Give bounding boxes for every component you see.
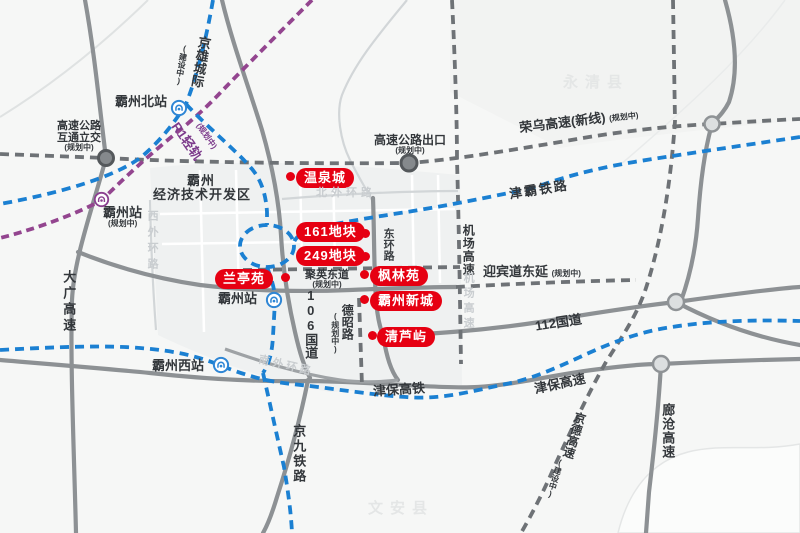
yingbin-name: 迎宾道东延 [483, 264, 548, 279]
venue-plot-161[interactable]: 161地块 [296, 222, 365, 242]
venue-dot [360, 295, 369, 304]
rail-station-icon[interactable] [170, 99, 188, 117]
station-note-planned: (规划中) [108, 220, 137, 229]
venue-qingluyu[interactable]: 清芦屿 [377, 327, 435, 347]
juying-note: (规划中) [305, 281, 349, 290]
highway-exit-note: (规划中) [374, 147, 446, 156]
venue-plot-249[interactable]: 249地块 [296, 246, 365, 266]
development-zone-line2: 经济技术开发区 [153, 188, 249, 202]
venue-fenglinyuan[interactable]: 枫林苑 [370, 266, 428, 286]
road-label-west-ring: 西外环路 [146, 210, 158, 274]
venue-dot [368, 331, 377, 340]
yingbin-note: (规划中) [552, 269, 581, 278]
venue-bazhou-xincheng[interactable]: 霸州新城 [370, 291, 442, 311]
development-zone-label: 霸州 经济技术开发区 [153, 174, 249, 203]
station-label-bazhou-north: 霸州北站 [115, 95, 167, 109]
road-label-dezhao: 德昭路 [340, 304, 353, 340]
road-label-langcang: 廊沧高速 [660, 403, 674, 459]
venue-dot [360, 270, 369, 279]
venue-dot [286, 172, 295, 181]
junction-node [653, 356, 669, 372]
road-label-yingbin: 迎宾道东延 (规划中) [483, 265, 581, 279]
venue-wenquancheng[interactable]: 温泉城 [296, 168, 354, 188]
highway-exit-label: 高速公路出口 (规划中) [374, 134, 446, 156]
venue-dot [281, 273, 290, 282]
county-watermark-wenan: 文安县 [368, 501, 434, 518]
junction-node [668, 294, 684, 310]
road-label-jingjiu: 京九铁路 [291, 424, 305, 484]
interchange-label: 高速公路 互通立交 (规划中) [48, 120, 110, 153]
jingjiu-railway-line [263, 373, 292, 533]
road-label-north-ring: 北外环路 [316, 187, 376, 199]
yingbin-east-extension-line [456, 280, 636, 287]
rail-station-icon[interactable] [212, 356, 230, 374]
county-watermark-yongqing: 永清县 [563, 75, 629, 92]
station-label-bazhou-west: 霸州西站 [152, 359, 204, 373]
road-watermark-airport-expwy: 机场高速 [462, 272, 474, 332]
road-label-juying: 聚英东道 (规划中) [305, 269, 349, 290]
road-label-daguang: 大广高速 [61, 270, 75, 334]
station-label-bazhou: 霸州站 [218, 292, 257, 306]
highway-exit-node [401, 155, 417, 171]
road-label-g106: 106国道 [303, 288, 317, 359]
venue-lantingyuan[interactable]: 兰亭苑 [215, 269, 273, 289]
rail-station-icon[interactable] [265, 291, 283, 309]
road-label-airport-expwy: 机场高速 [461, 224, 474, 276]
interchange-line1: 高速公路 [48, 120, 110, 132]
bazhou-area-map: 霸州北站 霸州站 (规划中) 霸州站 霸州西站 高速公路 互通立交 (规划中) … [0, 0, 800, 533]
development-zone-line1: 霸州 [153, 174, 249, 188]
rongwu-note: (规划中) [609, 111, 639, 124]
junction-node [705, 117, 720, 132]
road-note-dezhao: (规划中) [330, 312, 339, 354]
road-label-donghuan: 东环路 [382, 228, 394, 261]
interchange-note: (规划中) [48, 144, 110, 153]
